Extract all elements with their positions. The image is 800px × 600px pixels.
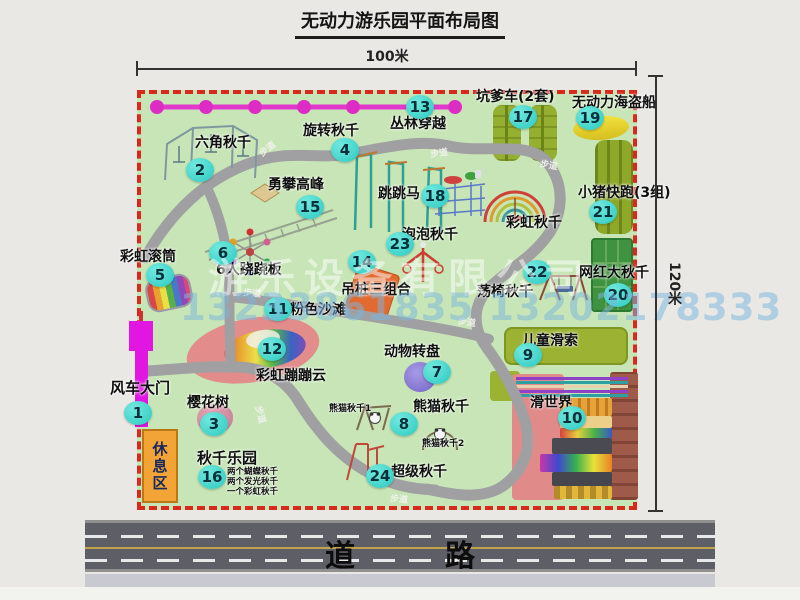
badge-swing-park: 16 [198,465,226,489]
label-animal-carousel: 动物转盘 [384,345,440,360]
label-cherry-tree: 樱花树 [187,396,229,411]
badge-climbing-peak: 15 [296,195,324,219]
walking-path [209,192,231,367]
label-hexagon-swing: 六角秋千 [195,136,251,151]
badge-cherry-tree: 3 [200,412,228,436]
trail-label: 步道 [429,145,449,160]
width-dimension-label: 100米 [137,46,637,66]
badge-kids-zipline: 9 [514,343,542,367]
badge-windmill-gate: 1 [124,401,152,425]
badge-pirate-ship: 19 [576,106,604,130]
badge-pink-beach: 11 [264,297,292,321]
badge-kengdie-car: 17 [509,105,537,129]
badge-rainbow-roller: 5 [146,263,174,287]
label-hanging-post-combo: 吊桩三组合 [341,283,411,298]
label-panda-swing-2: 熊猫秋千2 [422,440,464,449]
road-label: 道 路 [85,531,715,572]
badge-rainbow-bounce-cloud: 12 [258,337,286,361]
page-bottom-strip [0,587,800,600]
trail-label: 步道 [242,285,261,300]
label-big-swing: 网红大秋千 [579,266,649,281]
rest-area-label: 休息区 [150,441,171,492]
label-kengdie-car: 坑爹车(2套) [476,90,555,105]
badge-rotating-swing: 4 [331,138,359,162]
badge-super-swing: 24 [366,464,394,488]
trail-label: 步道 [389,491,408,506]
label-rotating-swing: 旋转秋千 [303,124,359,139]
badge-chair-swing: 22 [523,260,551,284]
windmill-gate-icon [139,311,143,321]
width-dimension-line [137,68,637,70]
swing-park-note: 两个蝴蝶秋千 [227,468,278,477]
badge-six-person-seesaw: 6 [209,241,237,265]
swing-park-note: 一个彩虹秋千 [227,488,278,497]
label-rainbow-roller: 彩虹滚筒 [120,250,176,265]
label-rainbow-swing: 彩虹秋千 [506,216,562,231]
dimension-tick [136,61,138,76]
road-shoulder [85,574,715,587]
rest-area: 休息区 [142,429,178,503]
label-jungle-crossing: 丛林穿越 [390,117,446,132]
badge-panda-swing: 8 [390,412,418,436]
label-panda-swing: 熊猫秋千 [413,400,469,415]
label-pink-beach: 粉色沙滩 [290,303,346,318]
badge-bubble-swing: 23 [386,232,414,256]
height-dimension-label: 120米 [664,262,684,305]
badge-pig-run: 21 [589,200,617,224]
label-chair-swing: 荡椅秋千 [477,285,533,300]
park-paths-layer [137,90,637,510]
badge-slide-world: 10 [558,406,586,430]
park-layout-diagram: 无动力游乐园平面布局图 100米 120米 [0,0,800,600]
badge-big-swing: 20 [604,283,632,307]
label-super-swing: 超级秋千 [391,465,447,480]
label-jumping-horse: 跳跳马 [378,187,420,202]
label-rainbow-bounce-cloud: 彩虹蹦蹦云 [256,369,326,384]
dimension-tick [648,510,663,512]
road: 道 路 [85,520,715,572]
badge-animal-carousel: 7 [423,360,451,384]
label-six-person-seesaw: 6人跷跷板 [216,263,282,278]
windmill-gate-icon [129,321,153,351]
badge-hexagon-swing: 2 [186,158,214,182]
trail-label: 步道 [457,314,477,329]
badge-jungle-crossing: 13 [406,95,434,119]
height-dimension-line [655,76,657,512]
dimension-tick [648,75,663,77]
label-panda-swing-1: 熊猫秋千1 [329,405,371,414]
badge-hanging-post-combo: 14 [348,250,376,274]
label-windmill-gate: 风车大门 [110,381,170,397]
swing-park-note: 两个发光秋千 [227,478,278,487]
badge-jumping-horse: 18 [421,184,449,208]
dimension-tick [635,61,637,76]
page-title: 无动力游乐园平面布局图 [295,7,505,39]
label-swing-park: 秋千乐园 [197,451,257,467]
label-climbing-peak: 勇攀高峰 [268,178,324,193]
